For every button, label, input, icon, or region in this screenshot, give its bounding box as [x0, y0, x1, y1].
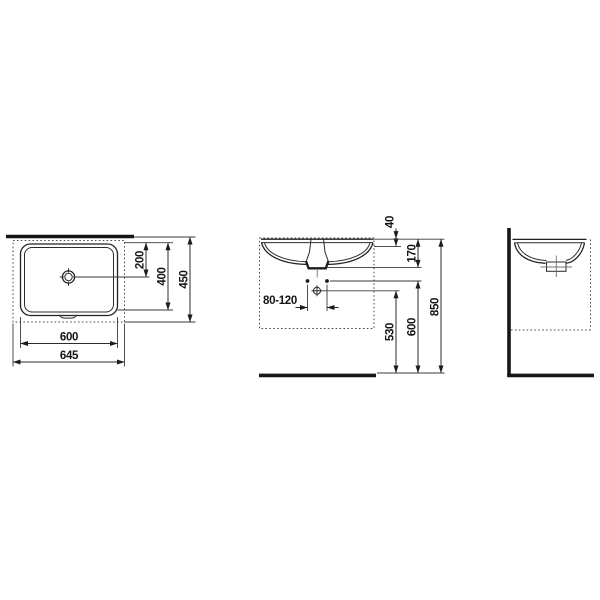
dimension-label-80-120: 80-120	[263, 295, 297, 307]
washbasin-drawing: 200 400 450 600 645	[0, 0, 600, 600]
vanity-outline-front	[260, 238, 375, 329]
technical-drawing-page: 200 400 450 600 645	[0, 0, 600, 600]
top-view: 200 400 450 600 645	[6, 237, 196, 367]
drain-outlet-front	[306, 261, 328, 268]
dimension-label-850: 850	[430, 298, 442, 316]
front-view: 80-120 40 170 530 600 850	[259, 216, 445, 376]
side-view	[507, 228, 594, 377]
dimension-label-170: 170	[407, 244, 419, 262]
basin-inner-edge	[25, 248, 114, 313]
dimension-label-600-width: 600	[60, 332, 78, 344]
dimension-label-600-height: 600	[407, 318, 419, 336]
countertop-cutout-outline	[13, 241, 125, 323]
fixing-hole-left	[306, 279, 310, 283]
drain-symbol-top-view	[60, 268, 77, 285]
fixing-hole-right	[325, 279, 329, 283]
bowl-inner-right	[328, 243, 370, 262]
dimension-label-200: 200	[135, 251, 147, 269]
drain-inner-circle	[65, 273, 72, 280]
dimension-label-645: 645	[60, 350, 79, 362]
basin-outer-edge	[21, 244, 118, 316]
dimension-label-530: 530	[385, 323, 397, 341]
bowl-inner-left	[265, 243, 307, 262]
bowl-inner-right-side	[566, 243, 582, 260]
drain-outer-circle	[62, 271, 74, 283]
dimension-label-400: 400	[157, 267, 169, 285]
dimension-label-40: 40	[385, 216, 397, 228]
bowl-outer-right-side	[567, 243, 585, 263]
dimension-label-450: 450	[179, 270, 191, 288]
bowl-inner-left-side	[518, 243, 547, 261]
